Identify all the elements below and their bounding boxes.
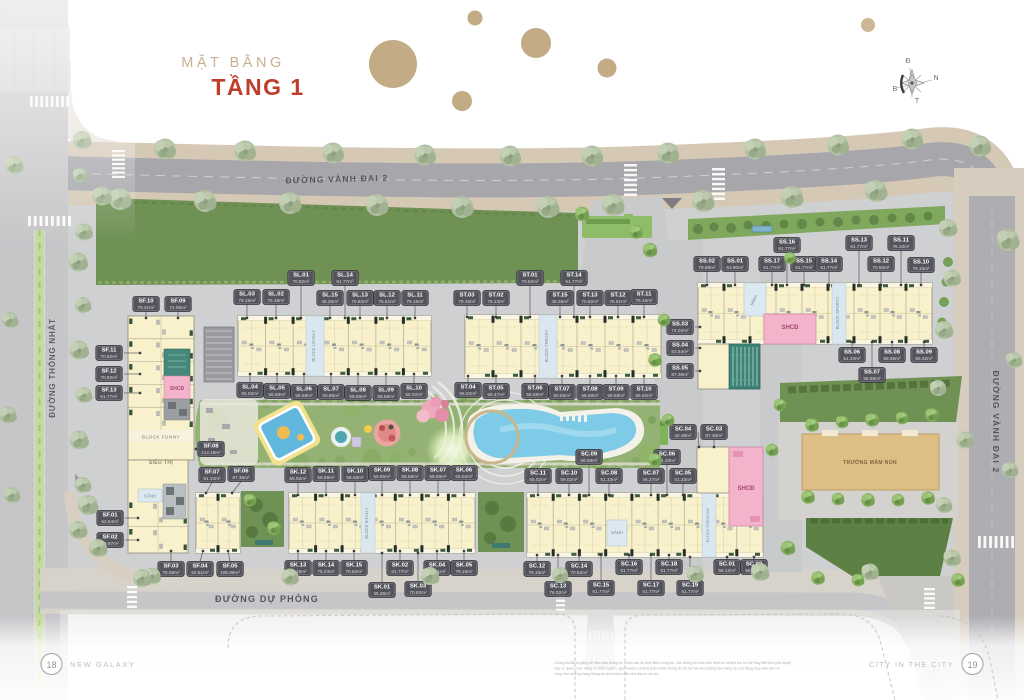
svg-text:BLOCK LOVELY: BLOCK LOVELY — [311, 330, 316, 362]
svg-text:79.15m²: 79.15m² — [912, 266, 930, 271]
svg-text:ST.08: ST.08 — [582, 387, 598, 393]
svg-text:SK.11: SK.11 — [318, 469, 335, 475]
svg-text:SC.03: SC.03 — [706, 427, 723, 433]
svg-text:SC.07: SC.07 — [643, 471, 660, 477]
svg-text:SS.03: SS.03 — [672, 322, 689, 328]
svg-text:SS.15: SS.15 — [796, 259, 813, 265]
svg-text:SHCĐ: SHCĐ — [170, 386, 185, 392]
svg-text:BLOCK TRENDY: BLOCK TRENDY — [544, 330, 549, 363]
svg-text:65.02m²: 65.02m² — [241, 391, 259, 396]
svg-text:SL.06: SL.06 — [296, 387, 312, 393]
svg-text:50.86m²: 50.86m² — [373, 474, 391, 479]
svg-text:SF.04: SF.04 — [192, 564, 208, 570]
svg-text:SL.11: SL.11 — [407, 293, 423, 299]
svg-text:SK.10: SK.10 — [347, 469, 364, 475]
svg-text:SL.04: SL.04 — [242, 385, 258, 391]
svg-text:74.02m²: 74.02m² — [671, 328, 689, 333]
svg-text:SHCĐ: SHCĐ — [781, 325, 799, 331]
svg-text:BLOCK FUNNY: BLOCK FUNNY — [142, 435, 180, 440]
svg-text:SK.07: SK.07 — [430, 468, 447, 474]
svg-text:SF.13: SF.13 — [101, 388, 117, 394]
svg-text:SS.06: SS.06 — [844, 350, 861, 356]
svg-text:Đ: Đ — [905, 58, 910, 65]
svg-text:50.86m²: 50.86m² — [322, 393, 340, 398]
svg-text:62.81m²: 62.81m² — [191, 570, 209, 575]
svg-text:79.15m²: 79.15m² — [528, 570, 546, 575]
svg-text:61.77m²: 61.77m² — [336, 279, 354, 284]
svg-text:58.58m²: 58.58m² — [580, 458, 598, 463]
svg-text:51.33m²: 51.33m² — [843, 356, 861, 361]
svg-text:70.82m²: 70.82m² — [100, 375, 118, 380]
svg-text:SC.14: SC.14 — [571, 564, 588, 570]
svg-text:SS.16: SS.16 — [779, 240, 796, 246]
svg-text:58.58m²: 58.58m² — [349, 394, 367, 399]
svg-text:58.58m²: 58.58m² — [346, 475, 364, 480]
svg-text:70.82m²: 70.82m² — [292, 279, 310, 284]
svg-text:BLOCK CREATIVE: BLOCK CREATIVE — [705, 507, 710, 542]
svg-text:ST.03: ST.03 — [459, 293, 475, 299]
svg-text:ST.06: ST.06 — [527, 386, 543, 392]
svg-text:cũng như những trang thông tin: cũng như những trang thông tin chính thứ… — [554, 672, 659, 676]
svg-text:SC.17: SC.17 — [643, 583, 660, 589]
svg-text:SS.10: SS.10 — [913, 260, 930, 266]
svg-text:61.77m²: 61.77m² — [660, 568, 678, 573]
svg-text:của cơ quan chức năng có thẩm: của cơ quan chức năng có thẩm quyền. Quý… — [554, 667, 780, 671]
svg-text:76.61m²: 76.61m² — [609, 299, 627, 304]
svg-text:75.23m²: 75.23m² — [487, 299, 505, 304]
svg-text:59.47m²: 59.47m² — [487, 392, 505, 397]
svg-text:SF.01: SF.01 — [102, 513, 118, 519]
svg-text:SẢNH: SẢNH — [611, 530, 623, 535]
svg-text:SK.03: SK.03 — [410, 584, 427, 590]
svg-text:SL.13: SL.13 — [352, 293, 368, 299]
svg-text:N: N — [933, 75, 938, 82]
svg-text:61.77m²: 61.77m² — [565, 279, 583, 284]
svg-text:SS.14: SS.14 — [821, 259, 838, 265]
svg-text:ST.09: ST.09 — [608, 387, 624, 393]
svg-text:ST.02: ST.02 — [488, 293, 504, 299]
svg-text:ST.07: ST.07 — [554, 387, 570, 393]
svg-text:65.02m²: 65.02m² — [635, 393, 653, 398]
svg-text:SC.13: SC.13 — [550, 584, 567, 590]
svg-text:SL.14: SL.14 — [337, 273, 353, 279]
svg-text:58.58m²: 58.58m² — [607, 393, 625, 398]
svg-text:18: 18 — [46, 660, 56, 670]
svg-text:SS.09: SS.09 — [916, 350, 933, 356]
svg-text:T: T — [915, 98, 920, 105]
svg-text:SC.10: SC.10 — [561, 471, 578, 477]
svg-text:42.38m²: 42.38m² — [674, 433, 692, 438]
svg-text:58.58m²: 58.58m² — [295, 393, 313, 398]
svg-text:SL.07: SL.07 — [323, 387, 339, 393]
svg-text:SL.12: SL.12 — [379, 293, 395, 299]
svg-text:61.77m²: 61.77m² — [100, 394, 118, 399]
svg-text:61.77m²: 61.77m² — [820, 265, 838, 270]
svg-text:SK.12: SK.12 — [290, 470, 307, 476]
svg-text:58.58m²: 58.58m² — [863, 376, 881, 381]
svg-text:61.77m²: 61.77m² — [642, 589, 660, 594]
svg-text:SK.01: SK.01 — [374, 585, 391, 591]
svg-text:65.02m²: 65.02m² — [459, 391, 477, 396]
svg-text:65.02m²: 65.02m² — [405, 392, 423, 397]
svg-text:105.89m²: 105.89m² — [220, 570, 240, 575]
svg-text:79.15m²: 79.15m² — [458, 299, 476, 304]
svg-text:79.88m²: 79.88m² — [698, 265, 716, 270]
svg-text:72.06m²: 72.06m² — [169, 305, 187, 310]
svg-text:ST.13: ST.13 — [582, 293, 598, 299]
svg-text:SL.15: SL.15 — [322, 293, 338, 299]
svg-text:ĐƯỜNG THỐNG NHẤT: ĐƯỜNG THỐNG NHẤT — [47, 318, 57, 418]
svg-text:SC.19: SC.19 — [682, 583, 699, 589]
svg-text:MẶT BẰNG: MẶT BẰNG — [181, 53, 284, 71]
svg-text:414.18m²: 414.18m² — [201, 450, 221, 455]
svg-text:76.02m²: 76.02m² — [549, 590, 567, 595]
svg-text:SS.05: SS.05 — [672, 366, 689, 372]
svg-text:SL.08: SL.08 — [350, 388, 366, 394]
svg-text:SF.10: SF.10 — [138, 299, 154, 305]
svg-text:BLOCK KNOLLY: BLOCK KNOLLY — [364, 507, 369, 539]
svg-text:61.77m²: 61.77m² — [592, 589, 610, 594]
svg-text:TRƯỜNG MẦM NON: TRƯỜNG MẦM NON — [843, 458, 897, 466]
svg-text:NEW GALAXY: NEW GALAXY — [70, 660, 136, 669]
svg-text:SK.13: SK.13 — [290, 563, 307, 569]
svg-text:SF.06: SF.06 — [233, 469, 249, 475]
svg-text:ST.05: ST.05 — [488, 386, 504, 392]
svg-text:58.12m²: 58.12m² — [718, 568, 736, 573]
svg-text:SK.02: SK.02 — [392, 563, 409, 569]
svg-text:SS.17: SS.17 — [764, 259, 781, 265]
svg-text:SC.09: SC.09 — [581, 452, 598, 458]
svg-text:SL.03: SL.03 — [239, 292, 255, 298]
svg-text:ST.10: ST.10 — [636, 387, 652, 393]
svg-text:Chúng tôi đã cố gắng để đảm bả: Chúng tôi đã cố gắng để đảm bảo thông ti… — [554, 660, 791, 665]
svg-text:46.27m²: 46.27m² — [642, 477, 660, 482]
svg-text:SC.11: SC.11 — [530, 471, 547, 477]
svg-text:19: 19 — [967, 660, 977, 670]
svg-text:SC.05: SC.05 — [675, 471, 692, 477]
svg-text:ST.15: ST.15 — [552, 293, 568, 299]
svg-text:79.15m²: 79.15m² — [238, 298, 256, 303]
svg-text:51.33m²: 51.33m² — [203, 476, 221, 481]
svg-text:SF.12: SF.12 — [101, 369, 117, 375]
svg-text:ST.11: ST.11 — [637, 292, 652, 298]
svg-text:50.65m²: 50.65m² — [553, 393, 571, 398]
svg-text:SC.08: SC.08 — [601, 471, 618, 477]
svg-text:SL.09: SL.09 — [378, 388, 394, 394]
svg-text:SF.03: SF.03 — [163, 564, 179, 570]
svg-text:SC.04: SC.04 — [675, 427, 692, 433]
svg-text:79.15m²: 79.15m² — [635, 298, 653, 303]
svg-text:79.15m²: 79.15m² — [406, 299, 424, 304]
svg-text:76.61m²: 76.61m² — [378, 299, 396, 304]
svg-text:62.64m²: 62.64m² — [101, 519, 119, 524]
svg-text:51.33m²: 51.33m² — [600, 477, 618, 482]
svg-text:SL.05: SL.05 — [269, 386, 285, 392]
svg-text:ST.04: ST.04 — [460, 385, 476, 391]
svg-text:SIÊU THỊ: SIÊU THỊ — [149, 458, 174, 466]
svg-text:58.58m²: 58.58m² — [883, 356, 901, 361]
svg-text:76.10m²: 76.10m² — [892, 244, 910, 249]
svg-text:58.58m²: 58.58m² — [317, 475, 335, 480]
svg-text:SS.12: SS.12 — [873, 259, 890, 265]
svg-text:SS.01: SS.01 — [727, 259, 744, 265]
svg-text:58.58m²: 58.58m² — [526, 392, 544, 397]
svg-text:75.31m²: 75.31m² — [137, 305, 155, 310]
svg-text:SF.02: SF.02 — [102, 535, 118, 541]
svg-text:58.58m²: 58.58m² — [377, 394, 395, 399]
svg-text:SS.02: SS.02 — [699, 259, 716, 265]
svg-text:61.77m²: 61.77m² — [620, 568, 638, 573]
svg-text:B: B — [893, 86, 898, 93]
svg-text:75.08m²: 75.08m² — [162, 570, 180, 575]
svg-text:SK.05: SK.05 — [456, 563, 473, 569]
svg-text:70.82m²: 70.82m² — [521, 279, 539, 284]
svg-text:61.77m²: 61.77m² — [795, 265, 813, 270]
svg-text:SẢNH: SẢNH — [144, 494, 156, 499]
svg-text:70.82m²: 70.82m² — [100, 354, 118, 359]
svg-text:65.02m²: 65.02m² — [529, 477, 547, 482]
svg-text:ST.14: ST.14 — [566, 273, 582, 279]
svg-text:61.77m²: 61.77m² — [850, 244, 868, 249]
svg-text:SF.09: SF.09 — [170, 299, 186, 305]
svg-text:SC.16: SC.16 — [621, 562, 638, 568]
svg-text:45.26m²: 45.26m² — [551, 299, 569, 304]
svg-text:SK.08: SK.08 — [402, 468, 419, 474]
svg-text:63.90m²: 63.90m² — [726, 265, 744, 270]
svg-text:SF.11: SF.11 — [102, 348, 117, 354]
svg-text:70.82m²: 70.82m² — [581, 299, 599, 304]
svg-text:SL.01: SL.01 — [293, 273, 309, 279]
svg-text:61.77m²: 61.77m² — [763, 265, 781, 270]
svg-text:SK.14: SK.14 — [318, 563, 335, 569]
svg-text:45.26m²: 45.26m² — [373, 591, 391, 596]
svg-text:87.36m²: 87.36m² — [671, 372, 689, 377]
svg-text:SS.11: SS.11 — [893, 238, 909, 244]
svg-text:65.02m²: 65.02m² — [455, 474, 473, 479]
svg-text:61.77m²: 61.77m² — [391, 569, 409, 574]
svg-text:75.23m²: 75.23m² — [317, 569, 335, 574]
svg-text:45.26m²: 45.26m² — [321, 299, 339, 304]
svg-text:65.02m²: 65.02m² — [915, 356, 933, 361]
svg-text:61.77m²: 61.77m² — [681, 589, 699, 594]
svg-text:TẦNG 1: TẦNG 1 — [211, 73, 304, 100]
svg-text:ST.12: ST.12 — [610, 293, 626, 299]
svg-text:70.82m²: 70.82m² — [409, 590, 427, 595]
svg-text:51.33m²: 51.33m² — [674, 477, 692, 482]
svg-text:58.58m²: 58.58m² — [268, 392, 286, 397]
svg-text:61.77m²: 61.77m² — [778, 246, 796, 251]
svg-text:58.58m²: 58.58m² — [581, 393, 599, 398]
svg-text:70.82m²: 70.82m² — [570, 570, 588, 575]
svg-text:SK.06: SK.06 — [456, 468, 473, 474]
svg-text:SC.01: SC.01 — [719, 562, 736, 568]
svg-text:SK.09: SK.09 — [374, 468, 391, 474]
svg-text:SF.05: SF.05 — [222, 564, 238, 570]
svg-text:87.36m²: 87.36m² — [705, 433, 723, 438]
svg-text:ĐƯỜNG VÀNH ĐAI 2: ĐƯỜNG VÀNH ĐAI 2 — [991, 371, 1002, 474]
svg-text:CITY IN THE CITY: CITY IN THE CITY — [869, 660, 954, 669]
svg-text:70.82m²: 70.82m² — [351, 299, 369, 304]
svg-text:SC.15: SC.15 — [593, 583, 610, 589]
svg-text:SS.08: SS.08 — [884, 350, 901, 356]
svg-text:70.82m²: 70.82m² — [345, 569, 363, 574]
svg-text:SF.07: SF.07 — [204, 470, 220, 476]
svg-text:59.02m²: 59.02m² — [560, 477, 578, 482]
svg-text:SC.18: SC.18 — [661, 562, 678, 568]
svg-text:53.54m²: 53.54m² — [671, 349, 689, 354]
svg-text:SS.04: SS.04 — [672, 343, 689, 349]
svg-text:SL.02: SL.02 — [268, 292, 284, 298]
svg-text:75.48m²: 75.48m² — [267, 298, 285, 303]
svg-text:SF.08: SF.08 — [203, 444, 219, 450]
svg-text:79.15m²: 79.15m² — [455, 569, 473, 574]
svg-text:SK.15: SK.15 — [346, 563, 363, 569]
svg-text:SC.12: SC.12 — [529, 564, 546, 570]
svg-text:BLOCK SPORTY: BLOCK SPORTY — [835, 297, 840, 330]
svg-text:ĐƯỜNG DỰ PHÒNG: ĐƯỜNG DỰ PHÒNG — [215, 593, 319, 604]
svg-text:70.82m²: 70.82m² — [872, 265, 890, 270]
svg-text:SS.13: SS.13 — [851, 238, 868, 244]
svg-text:58.58m²: 58.58m² — [429, 474, 447, 479]
svg-text:SHCĐ: SHCĐ — [737, 486, 755, 492]
svg-text:SS.07: SS.07 — [864, 370, 881, 376]
svg-text:SC.06: SC.06 — [659, 452, 676, 458]
svg-text:ST.01: ST.01 — [522, 273, 538, 279]
svg-text:58.58m²: 58.58m² — [401, 474, 419, 479]
svg-text:65.02m²: 65.02m² — [289, 476, 307, 481]
svg-text:87.36m²: 87.36m² — [232, 475, 250, 480]
svg-text:SL.10: SL.10 — [406, 386, 422, 392]
